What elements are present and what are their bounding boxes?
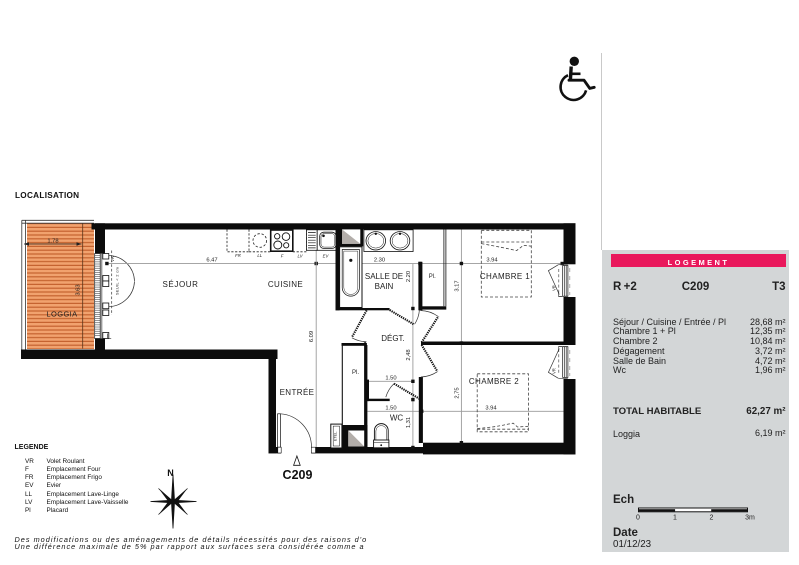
svg-text:VR: VR [551,368,556,374]
svg-text:6.09: 6.09 [309,331,315,342]
svg-text:3.17: 3.17 [454,280,460,291]
svg-text:LL: LL [257,253,262,258]
svg-text:3.63: 3.63 [76,284,82,295]
svg-text:CHAMBRE 1: CHAMBRE 1 [480,272,530,281]
svg-text:1.50: 1.50 [385,405,396,411]
svg-text:3.94: 3.94 [486,258,498,264]
svg-text:1,31: 1,31 [406,417,412,428]
svg-text:ENTRÉE: ENTRÉE [280,388,315,397]
svg-text:CUISINE: CUISINE [268,280,303,289]
svg-text:Pl.: Pl. [429,274,436,280]
svg-text:SALLE DE: SALLE DE [365,272,403,281]
svg-text:1.78: 1.78 [47,238,58,244]
svg-text:FR: FR [235,253,241,258]
svg-text:2,48: 2,48 [406,349,412,360]
svg-text:DÉGT.: DÉGT. [381,334,405,343]
svg-text:LOGGIA: LOGGIA [46,310,77,319]
svg-text:VR: VR [110,256,115,262]
svg-text:2.30: 2.30 [374,258,385,264]
svg-text:VR: VR [551,285,556,291]
svg-text:EV: EV [323,254,330,259]
svg-text:ETEL.: ETEL. [334,431,338,441]
svg-text:6.47: 6.47 [206,258,217,264]
svg-text:LV: LV [297,254,303,259]
svg-text:C209: C209 [283,468,313,482]
svg-text:Pl.: Pl. [352,370,359,376]
svg-text:SEUIL < 2 cm: SEUIL < 2 cm [114,267,119,296]
svg-text:F: F [281,254,284,259]
svg-text:SÉJOUR: SÉJOUR [162,280,198,289]
svg-text:CHAMBRE 2: CHAMBRE 2 [469,377,519,386]
svg-text:WC: WC [390,414,404,423]
svg-text:BAIN: BAIN [375,282,394,291]
svg-text:2.20: 2.20 [406,271,412,282]
svg-text:3.94: 3.94 [485,405,497,411]
svg-text:N: N [167,468,174,478]
svg-text:2,75: 2,75 [454,387,460,398]
svg-text:1.50: 1.50 [385,375,396,381]
